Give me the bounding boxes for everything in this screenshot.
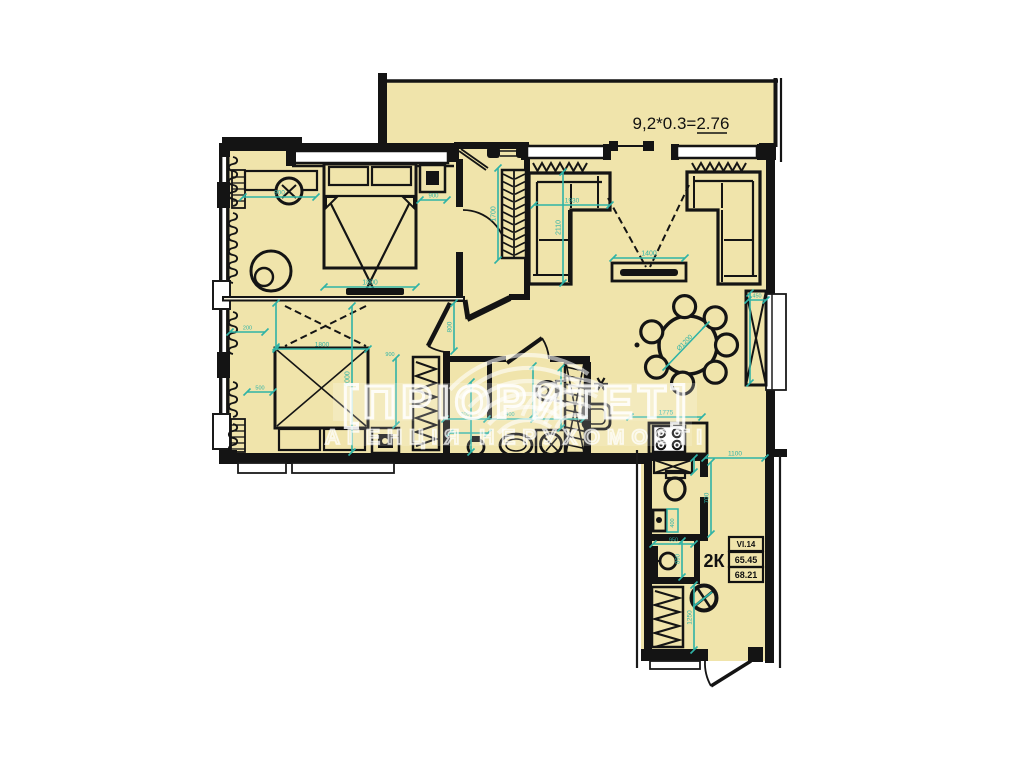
svg-text:400: 400 (670, 518, 676, 527)
svg-text:900: 900 (385, 352, 394, 358)
svg-text:890: 890 (676, 553, 682, 564)
svg-text:1100: 1100 (728, 451, 742, 458)
svg-text:68.21: 68.21 (735, 570, 758, 580)
svg-text:800: 800 (447, 321, 454, 332)
svg-text:65.45: 65.45 (735, 555, 758, 565)
svg-text:500: 500 (255, 386, 264, 392)
svg-text:9,2*0.3=2.76: 9,2*0.3=2.76 (633, 114, 730, 133)
svg-text:1400: 1400 (641, 251, 657, 258)
svg-text:1800: 1800 (315, 342, 330, 349)
svg-text:АГЕНЦІЯ НЕРУХОМОСТІ: АГЕНЦІЯ НЕРУХОМОСТІ (325, 426, 709, 449)
svg-text:200: 200 (243, 326, 252, 332)
svg-text:450: 450 (752, 294, 761, 300)
svg-text:[ПРІОРИТЕТ]: [ПРІОРИТЕТ] (343, 376, 692, 428)
svg-text:1700: 1700 (491, 206, 498, 222)
svg-text:700: 700 (704, 492, 711, 503)
svg-text:900: 900 (274, 190, 285, 197)
svg-text:1800: 1800 (362, 280, 378, 287)
svg-text:2К: 2К (704, 551, 726, 571)
svg-text:2110: 2110 (556, 220, 563, 235)
svg-text:950: 950 (669, 538, 678, 544)
svg-text:1930: 1930 (565, 198, 580, 205)
svg-text:1250: 1250 (687, 610, 694, 625)
svg-text:VI.14: VI.14 (737, 540, 756, 549)
svg-text:900: 900 (428, 194, 439, 200)
